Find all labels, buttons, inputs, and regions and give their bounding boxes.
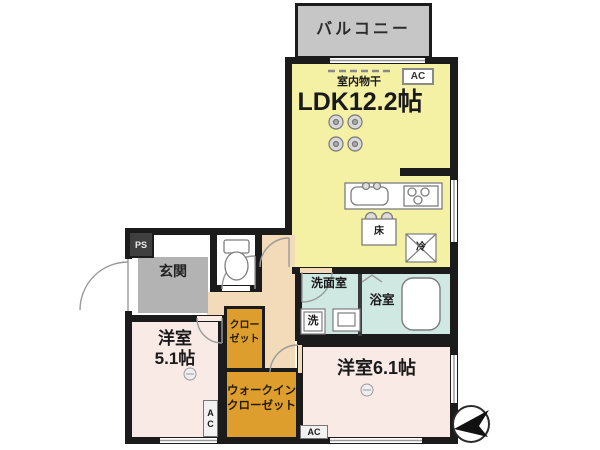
indoor-drying-label: 室内物干 xyxy=(314,76,404,89)
pipe-space-label: PS xyxy=(128,231,154,258)
western-room1-name: 洋室 xyxy=(158,329,192,348)
compass-icon xyxy=(453,406,489,442)
floor-plan: バルコニー 室内物干 LDK12.2帖 AC PS 玄関 洗面室 洗 浴室 洋室… xyxy=(0,0,600,450)
western-room1-label: 洋室 5.1帖 xyxy=(132,329,218,370)
entrance-label: 玄関 xyxy=(138,263,208,279)
washer-label: 洗 xyxy=(301,315,325,328)
room2-door-opening xyxy=(298,345,302,373)
entrance-door-arc xyxy=(80,259,128,311)
dining-chairs-icon xyxy=(329,115,362,151)
toilet-icon xyxy=(224,240,249,280)
toilet-door-opening xyxy=(222,286,250,291)
faucet-icon xyxy=(374,183,381,190)
washbasin-icon xyxy=(333,309,360,331)
closet-label: クロー ゼット xyxy=(225,319,264,347)
floor-storage-label: 床 xyxy=(362,226,396,238)
room1-door-opening xyxy=(197,316,222,321)
faucet-icon xyxy=(363,183,370,190)
bathroom-label: 浴室 xyxy=(360,293,404,307)
closet-line2: ゼット xyxy=(230,334,260,345)
bathtub-icon xyxy=(402,278,440,330)
ldk-door-arc xyxy=(260,238,289,267)
floorplan-linework xyxy=(0,0,600,450)
fridge-label: 冷 xyxy=(406,242,436,254)
ac-label-room2: AC xyxy=(300,425,328,439)
wic-line1: ウォークイン xyxy=(227,385,296,397)
closet-line1: クロー xyxy=(230,320,260,331)
balcony-label: バルコニー xyxy=(295,21,432,39)
bathroom-folding-door xyxy=(362,275,382,282)
kitchen-counter xyxy=(345,183,442,210)
ac-label-room1: AC xyxy=(203,400,218,437)
washroom-door-opening xyxy=(300,268,332,273)
ac-label-ldk: AC xyxy=(402,68,434,85)
kitchen-sink xyxy=(351,187,388,205)
western-room2-label: 洋室6.1帖 xyxy=(303,358,450,379)
western-room1-size: 5.1帖 xyxy=(155,349,196,368)
wic-line2: クローゼット xyxy=(227,400,296,412)
walk-in-closet-label: ウォークイン クローゼット xyxy=(223,384,300,414)
ldk-label: LDK12.2帖 xyxy=(285,88,435,117)
washroom-label: 洗面室 xyxy=(300,277,358,291)
room2-door-arc xyxy=(270,345,298,373)
